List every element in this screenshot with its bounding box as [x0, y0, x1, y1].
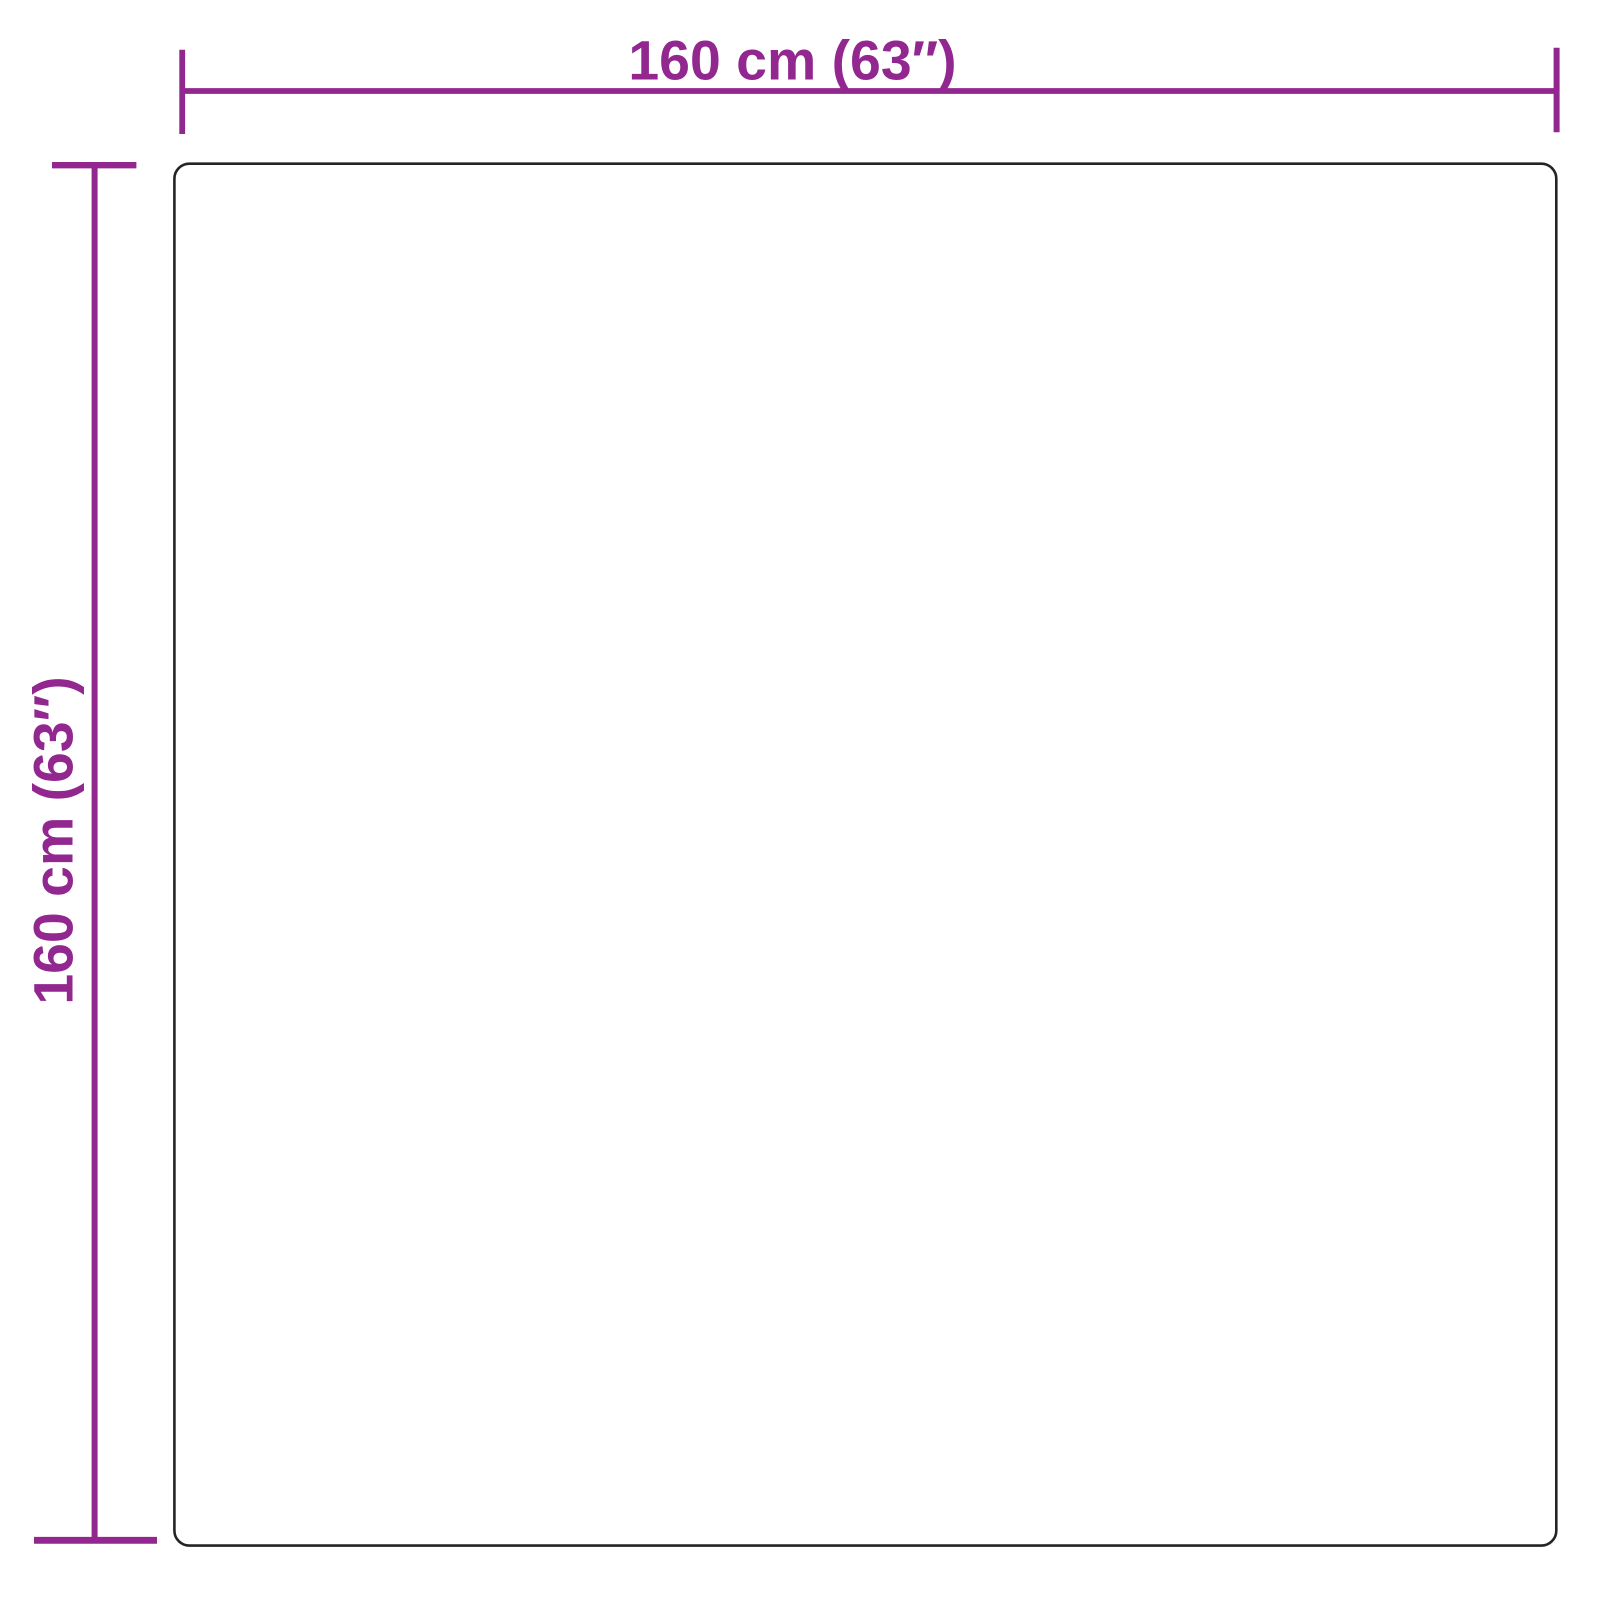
- svg-text:160 cm (63″): 160 cm (63″): [628, 29, 956, 91]
- svg-text:160 cm (63″): 160 cm (63″): [23, 676, 85, 1004]
